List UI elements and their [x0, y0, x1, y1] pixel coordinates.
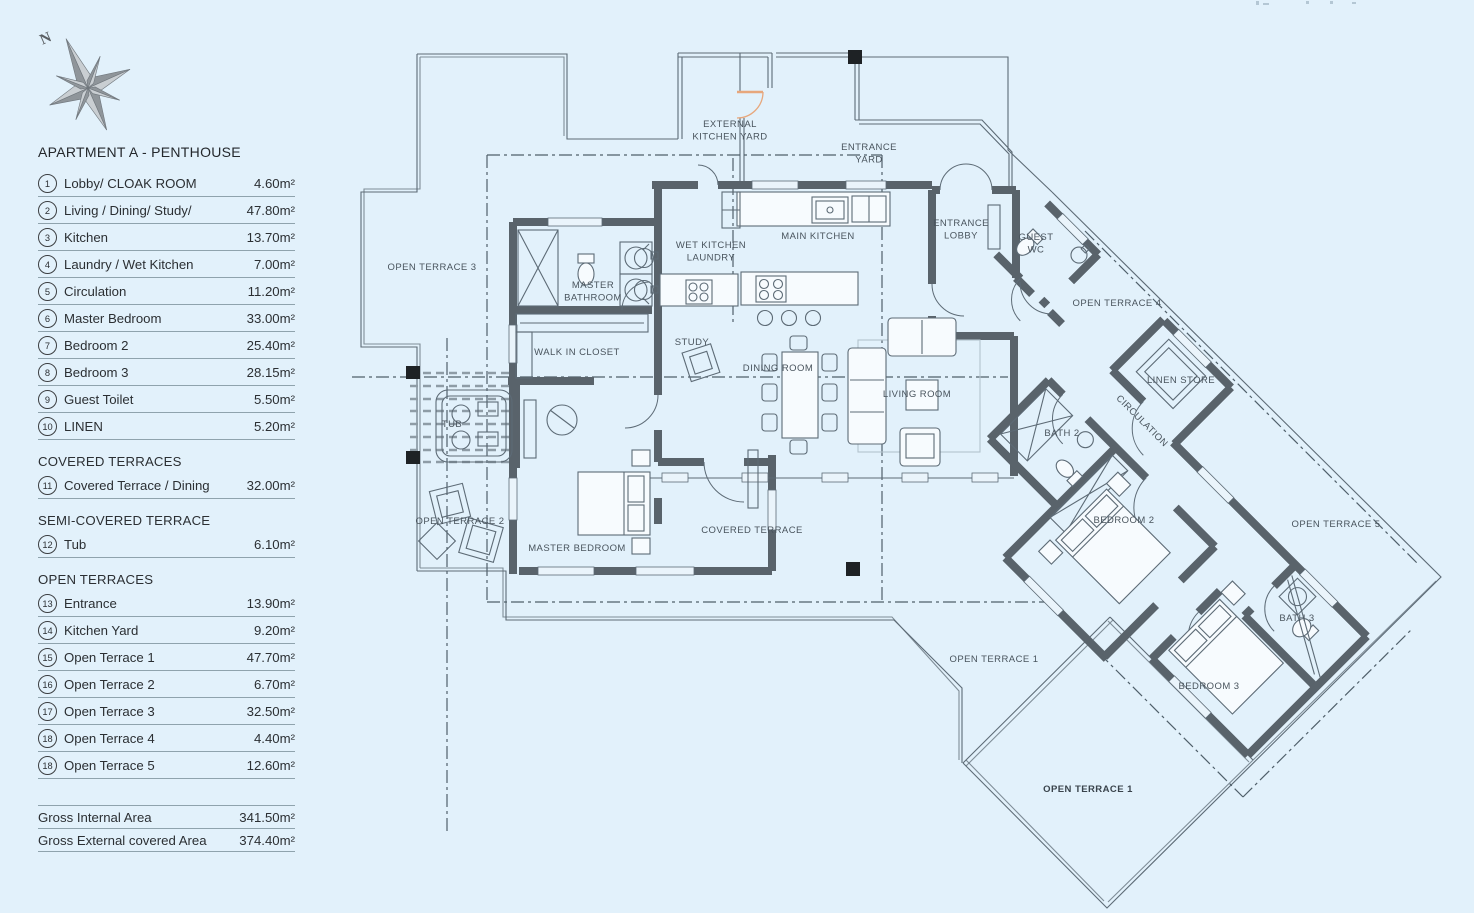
room-label: TUB — [442, 419, 462, 430]
column — [848, 50, 862, 64]
compass-rose-icon: N — [21, 5, 149, 147]
room-label: MASTER BEDROOM — [528, 543, 626, 554]
room-label: BEDROOM 3 — [1178, 681, 1239, 692]
room-label: OPEN TERRACE 3 — [387, 262, 476, 273]
room-label: COVERED TERRACE — [701, 525, 803, 536]
room-label: WET KITCHENLAUNDRY — [676, 240, 746, 264]
room-label: OPEN TERRACE 1 — [1043, 784, 1133, 795]
column — [846, 562, 860, 576]
room-label: EXTERNALKITCHEN YARD — [692, 119, 767, 143]
room-label: ENTRANCELOBBY — [933, 218, 989, 242]
room-label: MASTERBATHROOM — [564, 280, 622, 304]
compass-north-label: N — [38, 29, 55, 48]
cropped-marks — [1256, 1, 1356, 5]
furniture-wing — [875, 211, 1419, 755]
column — [406, 451, 420, 464]
room-label: OPEN TERRACE 1 — [949, 654, 1038, 665]
room-label: BATH 3 — [1279, 613, 1314, 624]
walls-diagonal-wing — [849, 203, 1423, 777]
room-label: OPEN TERRACE 2 — [415, 516, 504, 527]
floor-plan-drawing: N — [0, 0, 1474, 913]
room-label: DINING ROOM — [743, 363, 813, 374]
room-label: BATH 2 — [1044, 428, 1079, 439]
room-label: WALK IN CLOSET — [534, 347, 620, 358]
room-label: STUDY — [675, 337, 710, 348]
column — [406, 366, 420, 379]
room-label: MAIN KITCHEN — [781, 231, 855, 242]
floor-plan-page: APARTMENT A - PENTHOUSE 1Lobby/ CLOAK RO… — [0, 0, 1474, 913]
room-label: ENTRANCEYARD — [841, 142, 897, 166]
room-label: LIVING ROOM — [883, 389, 951, 400]
room-label: OPEN TERRACE 4 — [1072, 298, 1161, 309]
room-label: BEDROOM 2 — [1093, 515, 1154, 526]
room-label: LINEN STORE — [1147, 375, 1215, 386]
room-label: OPEN TERRACE 5 — [1291, 519, 1380, 530]
